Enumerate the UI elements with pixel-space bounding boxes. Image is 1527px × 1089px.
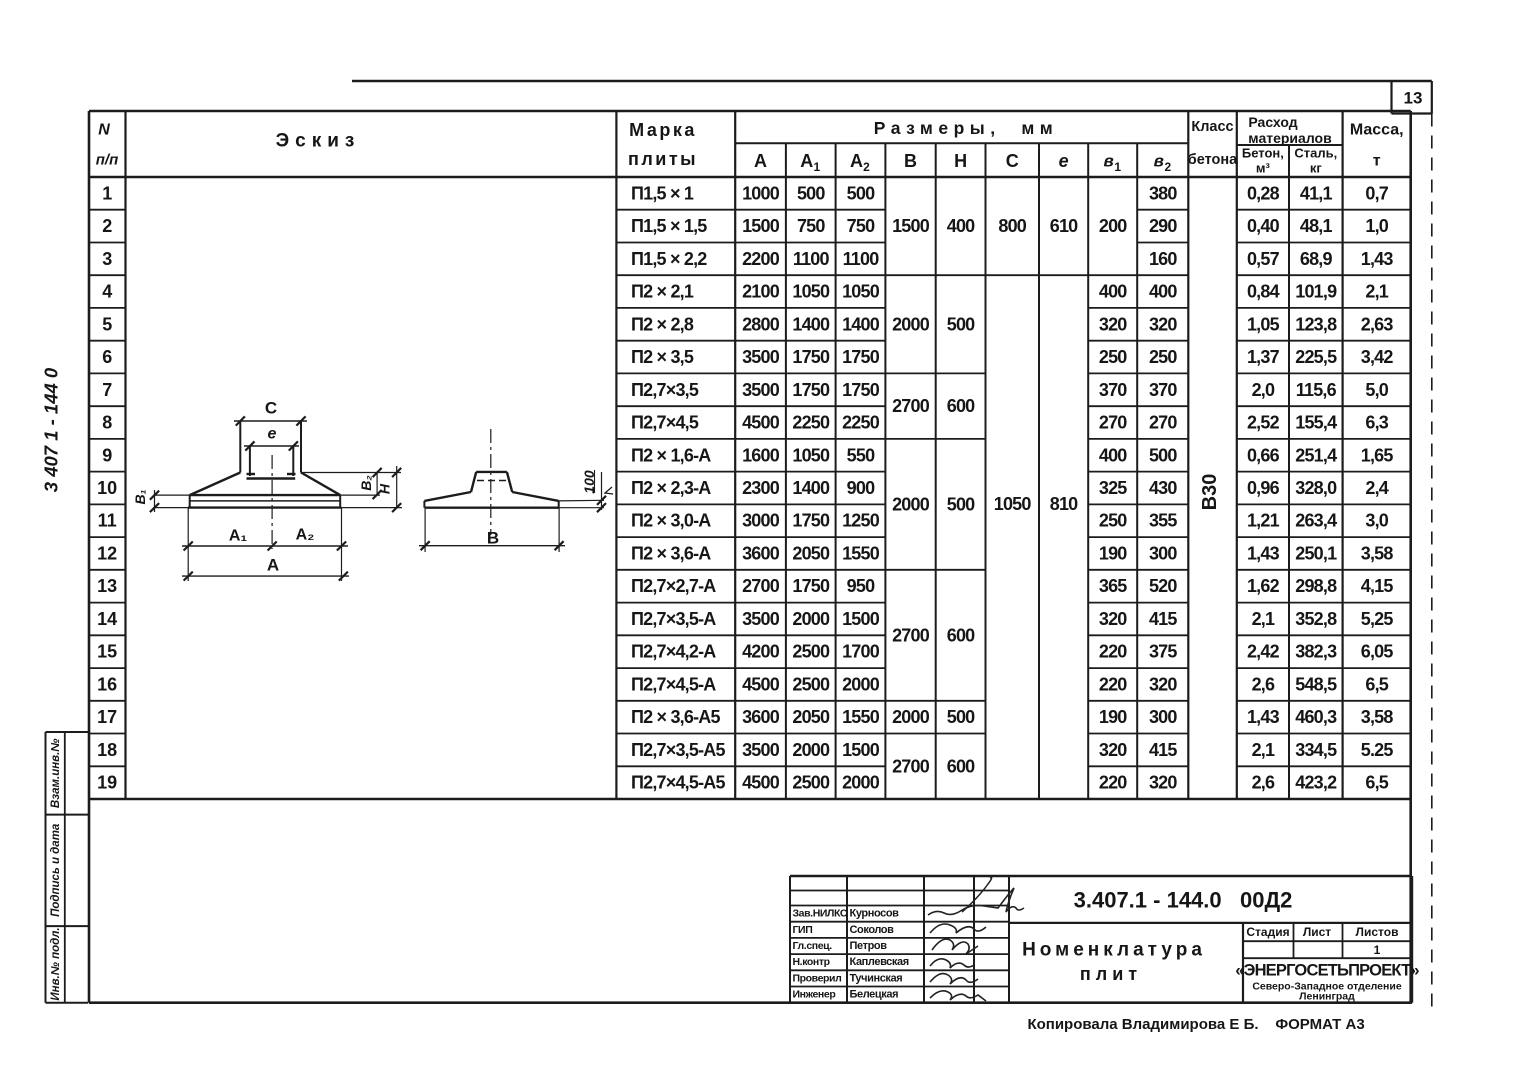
svg-text:Расход: Расход — [1248, 114, 1297, 130]
svg-text:А₂: А₂ — [296, 527, 315, 544]
svg-text:В30: В30 — [1199, 474, 1221, 511]
svg-text:В: В — [487, 529, 499, 548]
svg-text:1550: 1550 — [842, 707, 880, 727]
svg-text:м³: м³ — [1256, 161, 1271, 176]
svg-text:4: 4 — [102, 282, 112, 302]
svg-text:325: 325 — [1099, 478, 1127, 498]
svg-text:415: 415 — [1149, 609, 1177, 629]
svg-text:Инженер: Инженер — [793, 989, 836, 1001]
svg-text:2700: 2700 — [742, 576, 780, 596]
svg-text:N: N — [98, 122, 110, 139]
svg-text:1,43: 1,43 — [1247, 544, 1280, 564]
svg-text:Класс: Класс — [1191, 119, 1233, 135]
svg-text:1,65: 1,65 — [1361, 445, 1394, 465]
svg-text:П2 × 1,6-А: П2 × 1,6-А — [631, 445, 711, 465]
svg-text:4500: 4500 — [742, 674, 780, 694]
svg-text:Взам.инв.№: Взам.инв.№ — [50, 739, 62, 809]
svg-text:14: 14 — [97, 609, 117, 629]
svg-text:400: 400 — [1149, 282, 1177, 302]
svg-text:220: 220 — [1099, 773, 1127, 793]
svg-text:600: 600 — [947, 756, 975, 776]
svg-text:2100: 2100 — [742, 282, 780, 302]
svg-text:ГИП: ГИП — [793, 924, 813, 936]
svg-text:А: А — [754, 151, 767, 171]
svg-text:2,1: 2,1 — [1365, 282, 1388, 302]
svg-text:550: 550 — [847, 445, 875, 465]
svg-text:кг: кг — [1310, 161, 1323, 176]
svg-text:2050: 2050 — [792, 544, 830, 564]
svg-text:520: 520 — [1149, 576, 1177, 596]
svg-text:Лист: Лист — [1303, 925, 1331, 939]
svg-text:11: 11 — [98, 511, 117, 531]
svg-text:6,3: 6,3 — [1365, 413, 1388, 433]
svg-text:1700: 1700 — [842, 642, 880, 662]
svg-text:300: 300 — [1149, 707, 1177, 727]
svg-text:950: 950 — [847, 576, 875, 596]
svg-text:1750: 1750 — [842, 380, 880, 400]
svg-text:А₁: А₁ — [229, 528, 248, 545]
svg-text:750: 750 — [847, 216, 875, 236]
svg-text:400: 400 — [1099, 445, 1127, 465]
svg-text:2,0: 2,0 — [1252, 380, 1275, 400]
svg-text:Петров: Петров — [850, 940, 888, 952]
svg-text:375: 375 — [1149, 642, 1177, 662]
svg-text:19: 19 — [97, 773, 117, 793]
svg-text:5,25: 5,25 — [1361, 609, 1394, 629]
svg-text:298,8: 298,8 — [1295, 576, 1337, 596]
svg-text:320: 320 — [1099, 740, 1127, 760]
svg-text:1000: 1000 — [742, 183, 780, 203]
svg-text:400: 400 — [947, 216, 975, 236]
svg-text:3,58: 3,58 — [1361, 544, 1394, 564]
svg-text:250,1: 250,1 — [1295, 544, 1337, 564]
svg-text:П2 × 3,6-А: П2 × 3,6-А — [631, 544, 711, 564]
svg-text:Стадия: Стадия — [1246, 925, 1289, 939]
svg-text:2,1: 2,1 — [1252, 740, 1275, 760]
svg-text:С: С — [1006, 151, 1019, 171]
svg-text:1750: 1750 — [792, 511, 830, 531]
svg-text:П2 × 3,0-А: П2 × 3,0-А — [631, 511, 711, 531]
svg-text:П2 × 2,3-А: П2 × 2,3-А — [631, 478, 711, 498]
svg-text:Н: Н — [954, 151, 967, 171]
svg-text:6,5: 6,5 — [1365, 773, 1388, 793]
svg-text:Марка: Марка — [629, 120, 697, 140]
svg-text:160: 160 — [1149, 249, 1177, 269]
svg-text:1050: 1050 — [792, 445, 830, 465]
svg-text:3500: 3500 — [742, 380, 780, 400]
svg-text:800: 800 — [998, 216, 1026, 236]
svg-text:Н.контр: Н.контр — [793, 956, 830, 968]
svg-text:С: С — [265, 399, 277, 418]
svg-text:1100: 1100 — [793, 249, 830, 269]
svg-text:430: 430 — [1149, 478, 1177, 498]
svg-text:П2 × 3,6-А5: П2 × 3,6-А5 — [631, 707, 720, 727]
svg-text:П1,5 × 2,2: П1,5 × 2,2 — [631, 249, 707, 269]
svg-text:1,05: 1,05 — [1247, 314, 1280, 334]
svg-text:1750: 1750 — [792, 347, 830, 367]
svg-text:«ЭНЕРГОСЕТЬПРОЕКТ»: «ЭНЕРГОСЕТЬПРОЕКТ» — [1235, 962, 1419, 980]
svg-text:12: 12 — [97, 544, 117, 564]
svg-text:В: В — [904, 151, 917, 171]
svg-text:600: 600 — [947, 396, 975, 416]
svg-text:750: 750 — [797, 216, 825, 236]
svg-text:Проверил: Проверил — [793, 972, 842, 984]
svg-text:1,43: 1,43 — [1247, 707, 1280, 727]
svg-text:3,42: 3,42 — [1361, 347, 1394, 367]
svg-text:Каплевская: Каплевская — [850, 956, 909, 968]
svg-text:5,0: 5,0 — [1365, 380, 1388, 400]
svg-text:П2 × 2,1: П2 × 2,1 — [631, 282, 694, 302]
svg-text:382,3: 382,3 — [1295, 642, 1337, 662]
svg-text:А: А — [267, 556, 279, 575]
svg-text:1050: 1050 — [792, 282, 830, 302]
svg-text:9: 9 — [102, 445, 112, 465]
svg-text:П2 × 2,8: П2 × 2,8 — [631, 314, 694, 334]
svg-text:Подпись и дата: Подпись и дата — [50, 823, 62, 917]
svg-text:320: 320 — [1099, 609, 1127, 629]
svg-text:2200: 2200 — [742, 249, 780, 269]
svg-text:500: 500 — [847, 183, 875, 203]
svg-text:Ленинград: Ленинград — [1299, 991, 1355, 1003]
svg-text:1550: 1550 — [842, 544, 880, 564]
svg-text:е: е — [268, 426, 277, 443]
svg-text:4,15: 4,15 — [1361, 576, 1394, 596]
svg-text:1050: 1050 — [842, 282, 880, 302]
svg-text:в: в — [1104, 152, 1114, 171]
svg-text:1250: 1250 — [842, 511, 880, 531]
svg-text:2000: 2000 — [842, 773, 880, 793]
svg-text:548,5: 548,5 — [1295, 674, 1337, 694]
svg-text:18: 18 — [97, 740, 117, 760]
svg-text:900: 900 — [847, 478, 875, 498]
svg-text:3600: 3600 — [742, 707, 780, 727]
svg-text:1500: 1500 — [842, 740, 880, 760]
svg-text:2700: 2700 — [892, 625, 930, 645]
svg-text:1400: 1400 — [842, 314, 880, 334]
svg-text:1500: 1500 — [842, 609, 880, 629]
svg-text:500: 500 — [947, 314, 975, 334]
svg-text:500: 500 — [1149, 445, 1177, 465]
svg-text:Соколов: Соколов — [850, 924, 895, 936]
svg-text:8: 8 — [102, 413, 112, 433]
svg-text:Сталь,: Сталь, — [1294, 146, 1337, 161]
svg-text:Листов: Листов — [1356, 925, 1399, 939]
svg-text:3500: 3500 — [742, 609, 780, 629]
svg-text:600: 600 — [947, 625, 975, 645]
svg-text:250: 250 — [1099, 347, 1127, 367]
svg-text:2,42: 2,42 — [1247, 642, 1280, 662]
svg-text:320: 320 — [1099, 314, 1127, 334]
svg-text:2700: 2700 — [892, 396, 930, 416]
svg-text:155,4: 155,4 — [1295, 413, 1337, 433]
svg-text:0,40: 0,40 — [1247, 216, 1280, 236]
svg-text:0,84: 0,84 — [1247, 282, 1280, 302]
svg-text:1750: 1750 — [792, 380, 830, 400]
svg-text:270: 270 — [1149, 413, 1177, 433]
svg-text:2: 2 — [863, 160, 870, 174]
svg-text:0,28: 0,28 — [1247, 183, 1280, 203]
svg-text:1500: 1500 — [742, 216, 780, 236]
svg-text:423,2: 423,2 — [1295, 773, 1337, 793]
svg-text:1,21: 1,21 — [1247, 511, 1280, 531]
svg-text:В₁: В₁ — [132, 489, 148, 504]
svg-text:370: 370 — [1149, 380, 1177, 400]
svg-text:400: 400 — [1099, 282, 1127, 302]
svg-text:Эскиз: Эскиз — [276, 131, 361, 152]
svg-text:10: 10 — [97, 478, 117, 498]
svg-text:460,3: 460,3 — [1295, 707, 1337, 727]
svg-text:6: 6 — [102, 347, 112, 367]
svg-text:2,6: 2,6 — [1252, 674, 1275, 694]
svg-text:П2,7×4,5: П2,7×4,5 — [631, 413, 699, 433]
svg-text:610: 610 — [1050, 216, 1078, 236]
svg-text:2000: 2000 — [892, 314, 930, 334]
svg-text:3600: 3600 — [742, 544, 780, 564]
svg-text:п/п: п/п — [96, 152, 119, 169]
svg-text:16: 16 — [97, 674, 117, 694]
svg-text:1,43: 1,43 — [1361, 249, 1394, 269]
svg-text:123,8: 123,8 — [1295, 314, 1337, 334]
svg-text:115,6: 115,6 — [1296, 380, 1337, 400]
svg-text:П2,7×3,5-А: П2,7×3,5-А — [631, 609, 716, 629]
svg-text:300: 300 — [1149, 544, 1177, 564]
svg-text:Белецкая: Белецкая — [850, 989, 899, 1001]
svg-text:41,1: 41,1 — [1300, 183, 1333, 203]
svg-text:4200: 4200 — [742, 642, 780, 662]
svg-text:1100: 1100 — [843, 249, 880, 269]
svg-text:17: 17 — [97, 707, 117, 727]
svg-text:0,57: 0,57 — [1247, 249, 1280, 269]
svg-text:П2,7×4,5-А5: П2,7×4,5-А5 — [631, 773, 725, 793]
svg-text:П1,5 × 1: П1,5 × 1 — [631, 183, 694, 203]
svg-text:Масса,: Масса, — [1350, 122, 1404, 139]
svg-text:Размеры, мм: Размеры, мм — [874, 118, 1058, 138]
svg-text:250: 250 — [1149, 347, 1177, 367]
svg-text:Зав.НИЛКС: Зав.НИЛКС — [793, 908, 848, 920]
svg-text:1600: 1600 — [742, 445, 780, 465]
svg-text:Инв.№ подл.: Инв.№ подл. — [50, 927, 62, 1000]
svg-text:270: 270 — [1099, 413, 1127, 433]
svg-text:т: т — [1373, 153, 1381, 170]
svg-text:352,8: 352,8 — [1295, 609, 1337, 629]
svg-text:1050: 1050 — [994, 494, 1032, 514]
svg-text:251,4: 251,4 — [1295, 445, 1337, 465]
svg-text:бетона: бетона — [1188, 152, 1238, 168]
svg-text:415: 415 — [1149, 740, 1177, 760]
svg-text:6,5: 6,5 — [1365, 674, 1388, 694]
svg-text:2500: 2500 — [792, 674, 830, 694]
svg-text:2000: 2000 — [892, 494, 930, 514]
svg-text:П2 × 3,5: П2 × 3,5 — [631, 347, 694, 367]
svg-text:2: 2 — [1164, 160, 1171, 174]
svg-text:П2,7×4,5-А: П2,7×4,5-А — [631, 674, 716, 694]
svg-text:5.25: 5.25 — [1361, 740, 1394, 760]
svg-text:1: 1 — [102, 183, 112, 203]
svg-text:е: е — [1059, 151, 1069, 171]
svg-text:13: 13 — [1404, 89, 1423, 108]
svg-text:810: 810 — [1050, 494, 1078, 514]
svg-text:68,9: 68,9 — [1300, 249, 1333, 269]
svg-text:320: 320 — [1149, 773, 1177, 793]
svg-text:2300: 2300 — [742, 478, 780, 498]
svg-text:1400: 1400 — [792, 314, 830, 334]
svg-text:ФОРМАТ А3: ФОРМАТ А3 — [1275, 1016, 1364, 1033]
svg-text:2250: 2250 — [842, 413, 880, 433]
svg-text:13: 13 — [97, 576, 117, 596]
svg-text:3500: 3500 — [742, 347, 780, 367]
svg-text:290: 290 — [1149, 216, 1177, 236]
svg-text:1750: 1750 — [792, 576, 830, 596]
svg-text:А: А — [850, 151, 863, 171]
svg-text:220: 220 — [1099, 674, 1127, 694]
svg-text:2000: 2000 — [842, 674, 880, 694]
svg-text:101,9: 101,9 — [1295, 282, 1337, 302]
svg-text:2000: 2000 — [792, 740, 830, 760]
svg-text:1,37: 1,37 — [1247, 347, 1280, 367]
svg-text:3,58: 3,58 — [1361, 707, 1394, 727]
svg-text:320: 320 — [1149, 674, 1177, 694]
svg-text:250: 250 — [1099, 511, 1127, 531]
svg-text:380: 380 — [1149, 183, 1177, 203]
svg-text:190: 190 — [1099, 544, 1127, 564]
svg-text:2000: 2000 — [892, 707, 930, 727]
svg-text:П2,7×3,5-А5: П2,7×3,5-А5 — [631, 740, 725, 760]
svg-text:Курносов: Курносов — [850, 908, 900, 920]
svg-text:плит: плит — [1080, 964, 1142, 984]
svg-text:Бетон,: Бетон, — [1242, 146, 1284, 161]
svg-text:2,52: 2,52 — [1247, 413, 1280, 433]
svg-text:225,5: 225,5 — [1295, 347, 1337, 367]
svg-text:328,0: 328,0 — [1295, 478, 1337, 498]
svg-text:220: 220 — [1099, 642, 1127, 662]
svg-text:0,7: 0,7 — [1365, 183, 1388, 203]
svg-text:в: в — [1154, 152, 1164, 171]
svg-text:2,4: 2,4 — [1365, 478, 1388, 498]
svg-text:4500: 4500 — [742, 413, 780, 433]
svg-text:2500: 2500 — [792, 642, 830, 662]
svg-text:П1,5 × 1,5: П1,5 × 1,5 — [631, 216, 707, 236]
svg-text:3 407 1 - 144 0: 3 407 1 - 144 0 — [41, 367, 62, 492]
svg-text:3,0: 3,0 — [1365, 511, 1388, 531]
svg-text:А: А — [800, 151, 813, 171]
svg-text:1,0: 1,0 — [1365, 216, 1388, 236]
svg-text:2,1: 2,1 — [1252, 609, 1275, 629]
svg-text:П2,7×3,5: П2,7×3,5 — [631, 380, 699, 400]
svg-text:7: 7 — [102, 380, 112, 400]
svg-text:1500: 1500 — [892, 216, 930, 236]
svg-text:П2,7×2,7-А: П2,7×2,7-А — [631, 576, 716, 596]
svg-text:0,96: 0,96 — [1247, 478, 1280, 498]
svg-text:6,05: 6,05 — [1361, 642, 1394, 662]
svg-text:15: 15 — [97, 642, 117, 662]
svg-text:2,63: 2,63 — [1361, 314, 1394, 334]
svg-text:4500: 4500 — [742, 773, 780, 793]
svg-text:В₂: В₂ — [358, 475, 374, 490]
svg-text:1750: 1750 — [842, 347, 880, 367]
svg-text:плиты: плиты — [628, 149, 698, 169]
svg-text:5: 5 — [102, 314, 112, 334]
svg-text:Тучинская: Тучинская — [850, 972, 903, 984]
svg-text:0,66: 0,66 — [1247, 445, 1280, 465]
svg-text:материалов: материалов — [1248, 130, 1332, 146]
svg-text:500: 500 — [797, 183, 825, 203]
svg-text:365: 365 — [1099, 576, 1127, 596]
svg-text:2000: 2000 — [792, 609, 830, 629]
svg-text:1,62: 1,62 — [1247, 576, 1280, 596]
svg-text:2,6: 2,6 — [1252, 773, 1275, 793]
svg-text:190: 190 — [1099, 707, 1127, 727]
svg-text:Н: Н — [377, 483, 393, 494]
svg-text:2800: 2800 — [742, 314, 780, 334]
svg-text:3: 3 — [102, 249, 112, 269]
svg-text:1: 1 — [1374, 943, 1381, 957]
svg-text:370: 370 — [1099, 380, 1127, 400]
svg-text:2050: 2050 — [792, 707, 830, 727]
svg-text:Копировала Владимирова Е Б.: Копировала Владимирова Е Б. — [1027, 1016, 1258, 1033]
svg-text:1: 1 — [813, 160, 820, 174]
svg-text:334,5: 334,5 — [1295, 740, 1337, 760]
svg-text:3000: 3000 — [742, 511, 780, 531]
svg-text:320: 320 — [1149, 314, 1177, 334]
svg-text:355: 355 — [1149, 511, 1177, 531]
svg-text:П2,7×4,2-А: П2,7×4,2-А — [631, 642, 716, 662]
svg-text:2500: 2500 — [792, 773, 830, 793]
svg-text:2250: 2250 — [792, 413, 830, 433]
svg-text:Гл.спец.: Гл.спец. — [793, 940, 833, 952]
svg-text:2700: 2700 — [892, 756, 930, 776]
svg-text:500: 500 — [947, 494, 975, 514]
svg-text:48,1: 48,1 — [1300, 216, 1333, 236]
svg-text:200: 200 — [1099, 216, 1127, 236]
svg-text:1400: 1400 — [792, 478, 830, 498]
svg-text:1: 1 — [1114, 160, 1121, 174]
svg-text:500: 500 — [947, 707, 975, 727]
svg-text:263,4: 263,4 — [1295, 511, 1337, 531]
svg-text:3500: 3500 — [742, 740, 780, 760]
svg-text:Номенклатура: Номенклатура — [1022, 940, 1206, 961]
svg-text:2: 2 — [102, 216, 112, 236]
svg-text:3.407.1 - 144.0 00Д2: 3.407.1 - 144.0 00Д2 — [1074, 888, 1293, 913]
